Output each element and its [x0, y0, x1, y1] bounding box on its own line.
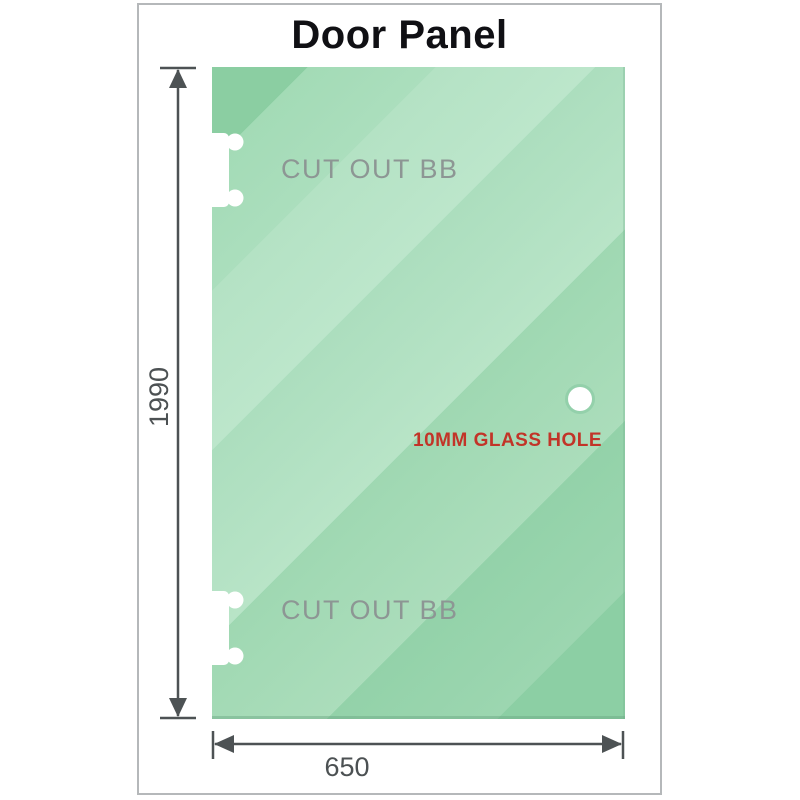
hinge-cutout-top-shape: [210, 133, 254, 207]
width-dimension-label: 650: [212, 752, 482, 783]
hinge-cutout-bottom-shape: [210, 591, 254, 665]
cutout-top-label: CUT OUT BB: [281, 154, 459, 185]
glass-hole: [568, 387, 592, 411]
page-title: Door Panel: [139, 13, 660, 58]
height-dimension-label: 1990: [144, 362, 172, 432]
drawing-frame: Door Panel 1990 CUT OUT BB CUT OUT BB 10…: [137, 3, 662, 795]
cutout-bottom-label: CUT OUT BB: [281, 595, 459, 626]
glass-panel: CUT OUT BB CUT OUT BB 10MM GLASS HOLE: [212, 67, 625, 719]
glass-hole-label: 10MM GLASS HOLE: [413, 430, 602, 452]
